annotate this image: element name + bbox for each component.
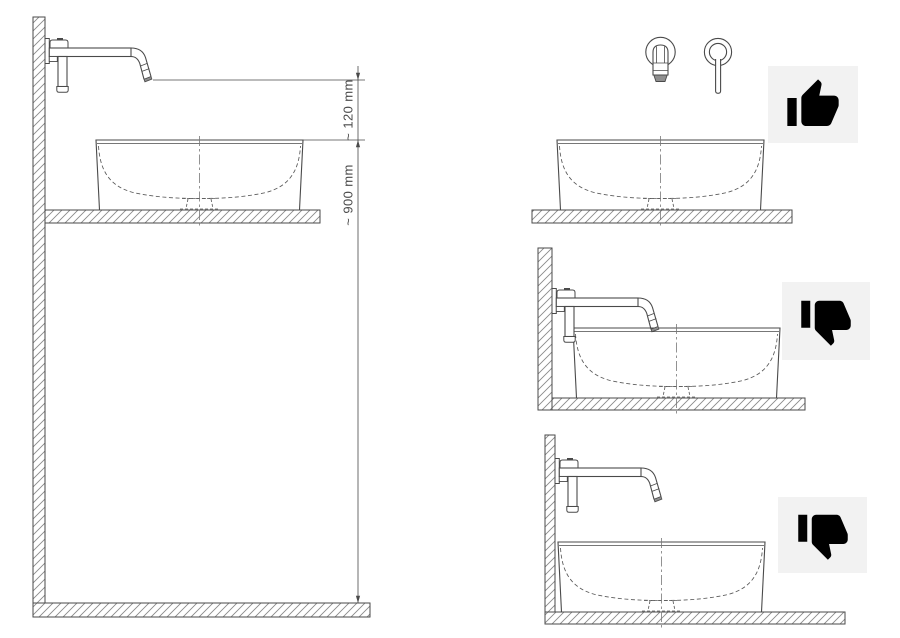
arrowhead-up-icon — [356, 140, 360, 147]
scenario-front-view-correct — [532, 37, 792, 228]
diagram-line-art: ~ 120 mm ~ 900 mm — [0, 0, 900, 638]
thumbs-up-icon — [785, 77, 841, 133]
arrowhead-down-icon — [356, 73, 360, 80]
wall-mounted-faucet-drawing — [555, 458, 662, 512]
dimension-label-spout-to-rim: ~ 120 mm — [341, 79, 356, 140]
handle-front-view — [704, 38, 731, 93]
floor-section — [545, 612, 845, 624]
spout-front-view — [646, 37, 675, 81]
wall-mounted-faucet-drawing — [45, 38, 152, 92]
rejected-badge — [778, 497, 867, 573]
scenario-spout-below-rim — [538, 248, 805, 416]
dimension-label-rim-to-floor: ~ 900 mm — [341, 164, 356, 225]
countertop-section — [552, 398, 805, 410]
wall-section — [545, 435, 555, 612]
approved-badge — [768, 66, 858, 143]
countertop-section — [45, 210, 320, 223]
rejected-badge — [782, 282, 870, 360]
installation-diagram: ~ 120 mm ~ 900 mm — [0, 0, 900, 638]
countertop-section — [532, 210, 792, 223]
arrowhead-down-icon — [356, 596, 360, 603]
wall-section — [538, 248, 552, 410]
floor-section — [33, 603, 370, 617]
thumbs-down-icon — [799, 294, 853, 348]
main-installation-drawing: ~ 120 mm ~ 900 mm — [33, 17, 370, 617]
thumbs-down-icon — [796, 508, 850, 562]
wall-section — [33, 17, 45, 603]
